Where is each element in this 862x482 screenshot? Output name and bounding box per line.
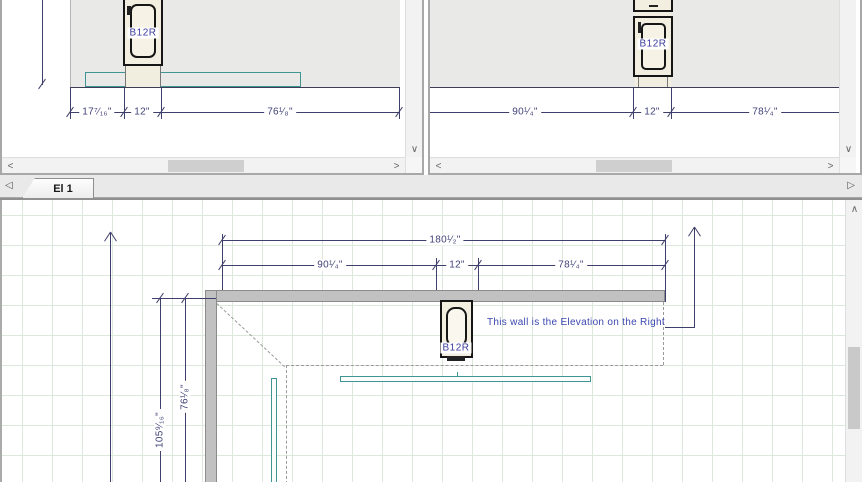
elevation-arrow-horizontal <box>665 327 695 328</box>
extension-line <box>161 88 162 119</box>
wall-direction-arrow <box>110 233 111 482</box>
extension-line <box>399 88 400 119</box>
elevation-left-canvas[interactable]: B12R 17⁷⁄₁₆" 12" 76¹⁄₈" <box>2 0 405 157</box>
dimension-label[interactable]: 17⁷⁄₁₆" <box>79 107 114 118</box>
dimension-line-segments <box>222 265 665 266</box>
dimension-label[interactable]: 78¹⁄₄" <box>555 260 587 271</box>
tab-next-icon[interactable]: ▷ <box>847 180 855 191</box>
cabinet-label[interactable]: B12R <box>637 39 668 50</box>
elevation-boundary-dashed <box>286 365 287 482</box>
wall-left[interactable] <box>205 290 217 482</box>
extension-line <box>70 88 71 119</box>
vertical-scrollbar[interactable]: ∨ <box>405 0 422 157</box>
dimension-label-vertical[interactable]: 105⁹⁄₁₆" <box>155 409 166 451</box>
elevation-arrow-vertical <box>694 228 695 328</box>
scroll-left-icon[interactable]: < <box>3 159 18 174</box>
wall-annotation-text[interactable]: This wall is the Elevation on the Right <box>487 317 665 328</box>
countertop-plan-horizontal[interactable] <box>340 376 591 382</box>
cabinet-label[interactable]: B12R <box>127 28 158 39</box>
scrollbar-corner <box>405 157 422 173</box>
countertop-plan-vertical[interactable] <box>271 378 277 482</box>
height-dimension-line <box>42 0 43 85</box>
wall-top[interactable] <box>205 290 665 302</box>
extension-line <box>633 88 634 119</box>
scrollbar-thumb[interactable] <box>168 160 244 172</box>
scrollbar-thumb[interactable] <box>596 160 672 172</box>
extension-line <box>665 234 666 302</box>
scroll-up-icon[interactable]: ∧ <box>847 202 862 217</box>
arrowhead-up-icon <box>689 227 700 237</box>
elevation-tab-strip: ◁ El 1 ▷ <box>0 175 862 198</box>
scroll-down-icon[interactable]: ∨ <box>841 142 856 157</box>
vertical-scrollbar[interactable]: ∧ <box>845 200 862 482</box>
countertop-center-tick <box>457 372 458 377</box>
cabinet-drawer-front[interactable] <box>633 0 673 12</box>
cabinet-plan-front-edge <box>447 356 465 361</box>
cabinet-door-handle <box>638 22 641 33</box>
plan-view-panel: 180¹⁄₂" 90¹⁄₄" 12" 78¹⁄₄" <box>0 198 862 482</box>
tab-el1[interactable]: El 1 <box>22 178 94 198</box>
dimension-label[interactable]: 76¹⁄₈" <box>264 107 296 118</box>
tab-prev-icon[interactable]: ◁ <box>5 180 13 191</box>
floor-line <box>430 87 839 88</box>
extension-line <box>124 88 125 119</box>
extension-line <box>671 88 672 119</box>
floor-line <box>70 87 400 88</box>
elevation-boundary-dashed <box>286 365 663 366</box>
cabinet-plan-door <box>446 307 467 347</box>
scroll-right-icon[interactable]: > <box>389 159 404 174</box>
dimension-label-vertical[interactable]: 76¹⁄₈" <box>180 381 191 413</box>
horizontal-scrollbar[interactable]: < > <box>430 157 839 173</box>
panel-border <box>0 200 2 482</box>
elevation-right-panel: B12R 90¹⁄₄" 12" 78¹⁄₄" ∨ < > <box>428 0 862 175</box>
drawer-handle <box>649 5 658 7</box>
cabinet-label[interactable]: B12R <box>440 343 471 354</box>
dimension-label-total[interactable]: 180¹⁄₂" <box>426 235 463 246</box>
tab-el1-label: El 1 <box>53 183 73 195</box>
arrowhead-up-icon <box>105 232 116 242</box>
dimension-label[interactable]: 78¹⁄₄" <box>749 107 781 118</box>
wall-miter-dashed-line <box>216 303 285 367</box>
cabinet-b12r-base[interactable] <box>125 66 161 87</box>
dimension-label[interactable]: 90¹⁄₄" <box>314 260 346 271</box>
elevation-right-canvas[interactable]: B12R 90¹⁄₄" 12" 78¹⁄₄" <box>430 0 839 157</box>
cabinet-b12r-base[interactable] <box>638 77 668 87</box>
dimension-line <box>70 112 400 113</box>
scroll-right-icon[interactable]: > <box>823 159 838 174</box>
extension-line <box>222 234 223 290</box>
countertop-elevation[interactable] <box>85 72 301 87</box>
vertical-scrollbar[interactable]: ∨ <box>839 0 856 157</box>
scroll-down-icon[interactable]: ∨ <box>407 142 422 157</box>
dimension-label[interactable]: 12" <box>446 260 468 271</box>
cabinet-door-handle <box>127 6 131 15</box>
dimension-line-vertical <box>160 298 161 482</box>
dimension-label[interactable]: 12" <box>131 107 153 118</box>
scrollbar-corner <box>839 157 856 173</box>
horizontal-scrollbar[interactable]: < > <box>2 157 405 173</box>
scroll-left-icon[interactable]: < <box>431 159 446 174</box>
dimension-label[interactable]: 12" <box>641 107 663 118</box>
elevation-left-panel: B12R 17⁷⁄₁₆" 12" 76¹⁄₈" ∨ < > <box>0 0 424 175</box>
plan-view-canvas[interactable]: 180¹⁄₂" 90¹⁄₄" 12" 78¹⁄₄" <box>0 200 845 482</box>
dimension-label[interactable]: 90¹⁄₄" <box>509 107 541 118</box>
elevation-boundary-dashed <box>663 302 664 365</box>
cad-application-window: B12R 17⁷⁄₁₆" 12" 76¹⁄₈" ∨ < > <box>0 0 862 482</box>
scrollbar-thumb[interactable] <box>848 347 860 429</box>
